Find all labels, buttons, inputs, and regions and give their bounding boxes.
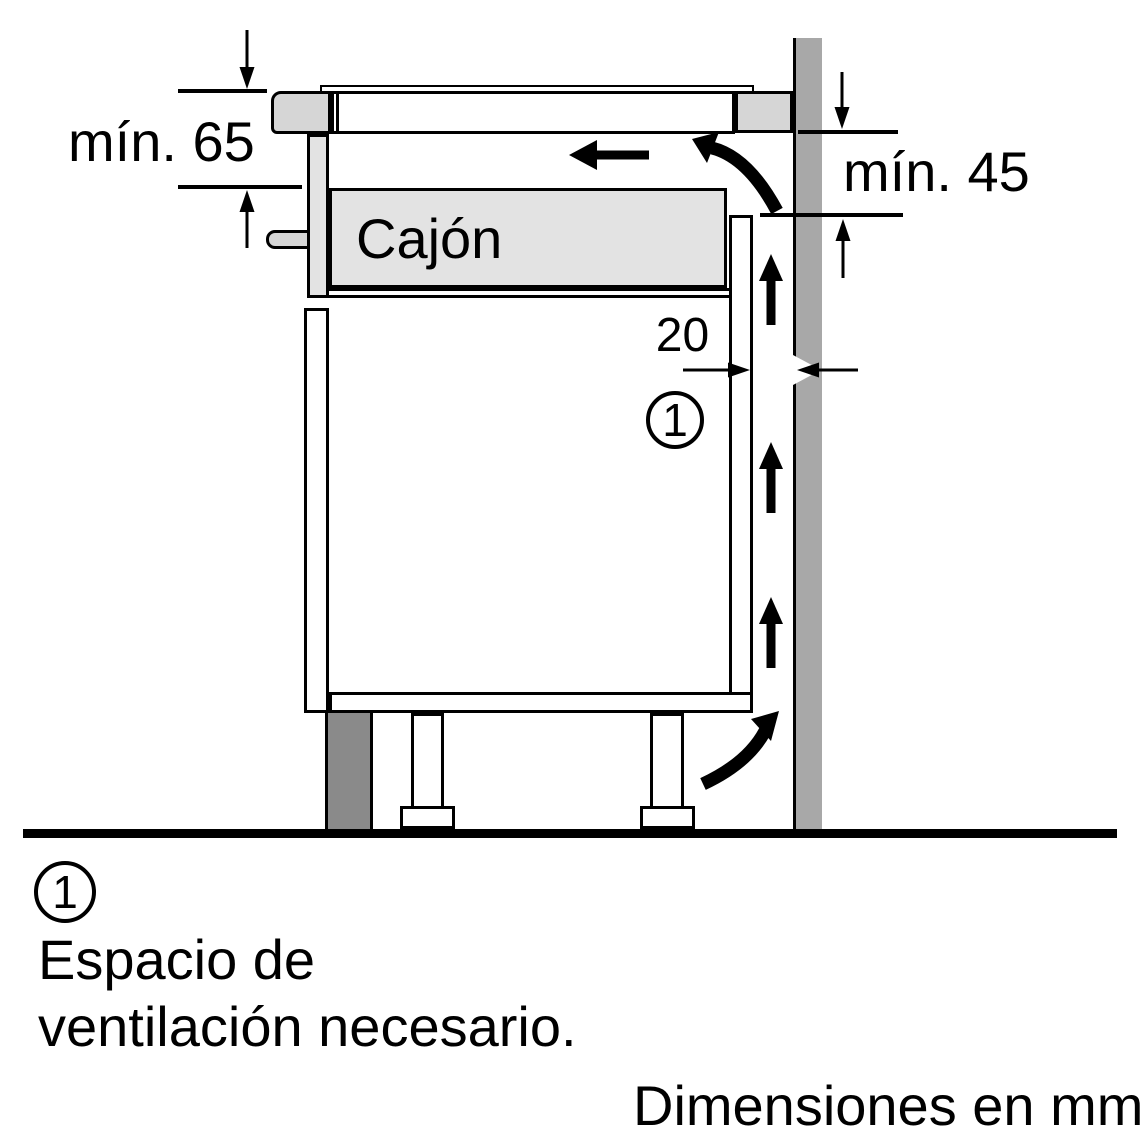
worktop-cross-section [331, 91, 735, 134]
legend-line-2: ventilación necesario. [38, 993, 577, 1060]
dimension-line-min65-bottom [178, 185, 302, 189]
drawer-bottom-panel [329, 288, 730, 298]
dimension-label-20: 20 [650, 310, 715, 362]
vent-callout-circle: 1 [646, 391, 704, 449]
cabinet-leg-front-foot [400, 806, 455, 829]
hob-front-edge [271, 91, 331, 134]
dimension-arrow-min65-up [240, 190, 255, 248]
installation-diagram: Cajón mín. 65 mín. 45 20 1 1 Espacio de … [0, 0, 1140, 1140]
legend-marker-digit: 1 [52, 865, 78, 919]
worktop-seam-line [336, 92, 339, 133]
hob-glass-top [320, 85, 754, 93]
legend-marker-circle: 1 [34, 861, 96, 923]
cabinet-leg-back-stem [650, 713, 684, 809]
legend-text: Espacio de ventilación necesario. [38, 926, 577, 1060]
units-note: Dimensiones en mm [633, 1076, 1140, 1136]
cabinet-leg-front-stem [411, 713, 444, 809]
legend-line-1: Espacio de [38, 926, 577, 993]
airflow-arrow-up-1 [759, 254, 783, 325]
cabinet-leg-back-foot [640, 806, 695, 829]
dimension-arrow-min45-up [836, 219, 851, 278]
dimension-label-min-45: mín. 45 [843, 142, 1030, 202]
hob-back-edge [735, 91, 793, 133]
dimension-arrow-min65-down [240, 30, 255, 89]
cabinet-plinth [325, 713, 373, 829]
dimension-arrow-min45-down [835, 72, 850, 129]
airflow-arrow-left [569, 140, 649, 170]
drawer-label: Cajón [332, 206, 502, 271]
airflow-arrow-up-2 [759, 442, 783, 513]
drawer-handle [266, 230, 310, 249]
airflow-arrow-curve-bottom [703, 711, 779, 784]
dimension-label-min-65: mín. 65 [68, 112, 255, 172]
vent-callout-digit: 1 [662, 393, 688, 447]
cabinet-bottom-panel [329, 692, 753, 713]
dimension-line-min45-bottom [760, 213, 903, 217]
floor-line [23, 829, 1117, 838]
dimension-line-min65-top [178, 89, 267, 93]
cabinet-back-panel [729, 215, 753, 713]
dimension-line-min45-top [798, 130, 898, 134]
cabinet-front-panel [304, 308, 329, 713]
drawer-front-panel [307, 134, 329, 298]
wall [793, 38, 822, 829]
airflow-arrow-up-3 [759, 597, 783, 668]
drawer-box: Cajón [329, 188, 727, 288]
